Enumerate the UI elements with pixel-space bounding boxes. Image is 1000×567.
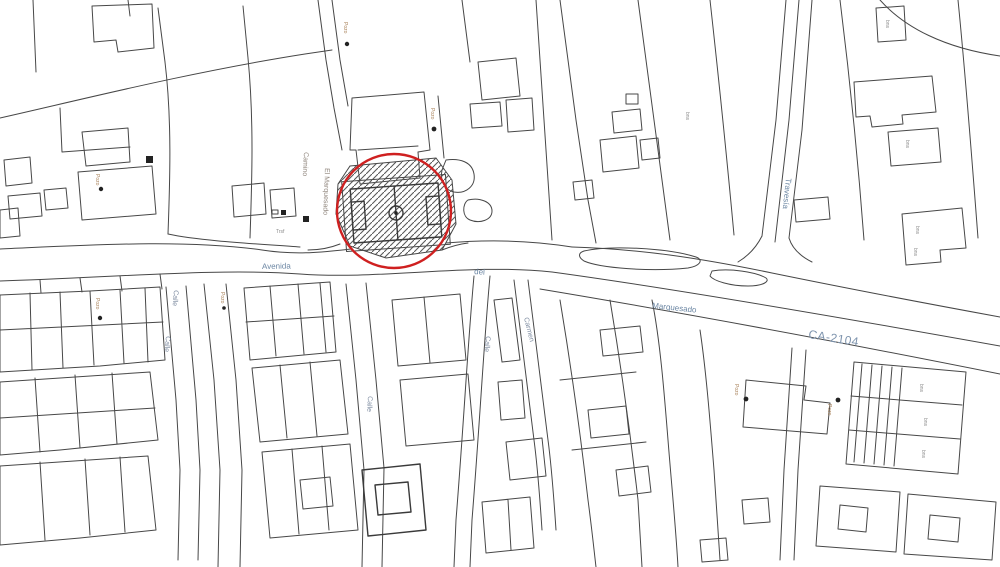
village-bottom-left [0, 282, 474, 567]
street-label-calle-1: Calle [171, 290, 179, 307]
pozo-dot [345, 42, 349, 46]
pozo-dot [98, 316, 102, 320]
pozo-dot [99, 187, 103, 191]
street-label-el-marquesado: El Marquesado [321, 168, 330, 215]
street-label-calle-2: Calle [163, 336, 171, 353]
pozo-label: Pozo [429, 108, 435, 120]
road-label-avenida: Avenida [262, 261, 291, 271]
road-label-del: del [474, 267, 485, 277]
bns-label: bns [920, 450, 926, 459]
pozo-dot [744, 397, 749, 402]
pozo-label: Pozo [826, 404, 832, 416]
street-label-calle-4: Calle [483, 336, 491, 353]
cadastral-map: Avenida del Marquesado CA-2104 Travesía … [0, 0, 1000, 567]
parcels-bottom-center [454, 276, 678, 567]
bns-label: bns [684, 112, 690, 121]
parcels-top-left [0, 0, 332, 293]
bns-label: bns [922, 418, 928, 427]
pozo-dot [432, 127, 437, 132]
road-label-ca-2104: CA-2104 [808, 327, 860, 349]
pozo-label: Pozo [94, 298, 100, 310]
pozo-label: Pozo [94, 174, 100, 186]
bns-label: bns [904, 140, 910, 149]
road-network [0, 0, 1000, 374]
pozo-dot [836, 398, 841, 403]
bns-label: bns [914, 226, 920, 235]
street-label-camino: Camino [301, 152, 309, 177]
pozo-label: Pozo [342, 22, 348, 34]
pozo-label: Pozo [733, 384, 739, 396]
street-label-calle-3: Calle [365, 396, 373, 412]
pozo-label: Pozo [219, 292, 225, 304]
bns-label: bns [918, 384, 924, 393]
well-markers [98, 42, 841, 403]
trsf-label: Trsf [276, 229, 285, 235]
bns-label: bns [912, 248, 918, 257]
football-field [308, 158, 468, 258]
road-label-travesia: Travesía [781, 178, 793, 210]
bns-label: bns [884, 20, 890, 29]
pozo-dot [222, 306, 226, 310]
map-canvas: Avenida del Marquesado CA-2104 Travesía … [0, 0, 1000, 567]
